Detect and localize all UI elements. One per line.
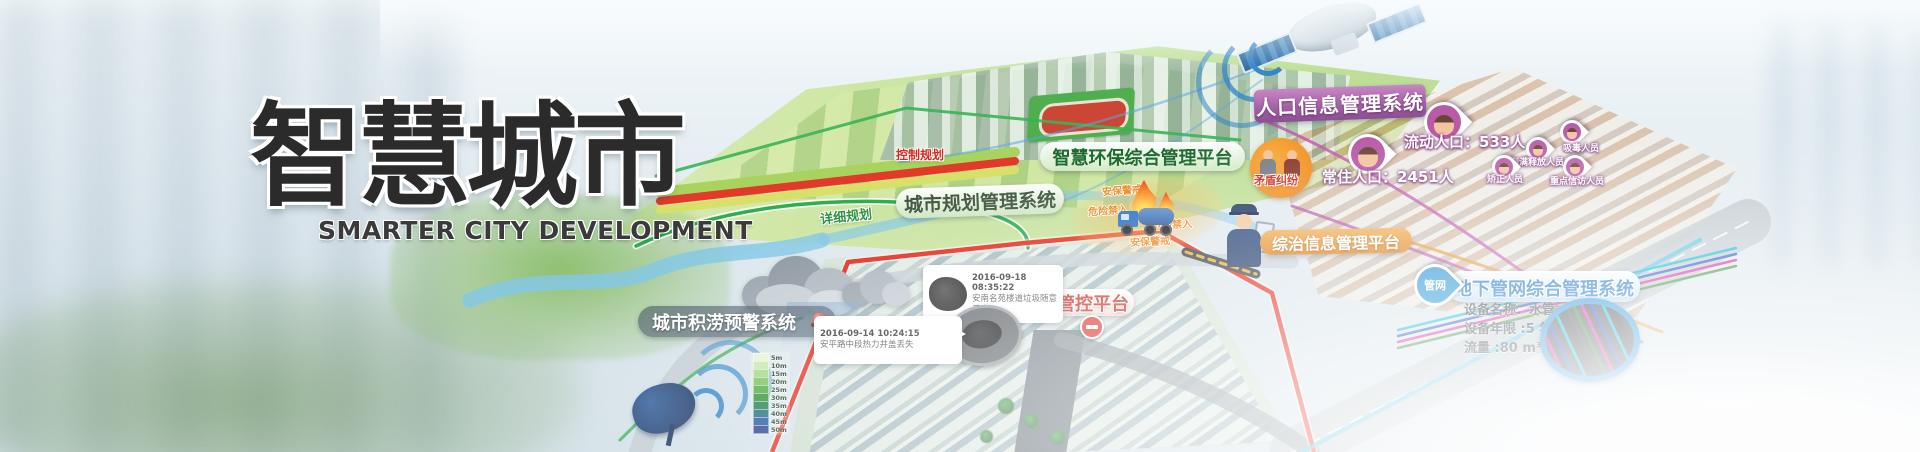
- legend-row: 30m: [753, 394, 787, 401]
- flood-warning-text: 城市积涝预警系统: [652, 309, 796, 335]
- pipe-pin-text: 管网: [1417, 277, 1453, 293]
- pipe-info-name: 设备名称：水管: [1464, 301, 1556, 320]
- label-governance-platform[interactable]: 综治信息管理平台: [1260, 228, 1412, 256]
- tree-icon: [1024, 414, 1038, 428]
- incident-time: 2016-09-14 10:24:15: [820, 329, 920, 340]
- accident-truck-icon: [1118, 207, 1176, 231]
- pin-label-resident-population: 常住人口：2451人: [1322, 166, 1454, 187]
- legend-label: 30m: [771, 394, 787, 402]
- legend-row: 20m: [753, 378, 787, 385]
- note-control-plan: 控制规划: [896, 146, 944, 163]
- pipe-magnifier-photo: [1540, 298, 1640, 382]
- legend-label: 25m: [771, 386, 787, 394]
- legend-row: 50m: [753, 426, 787, 433]
- legend-row: 10m: [753, 362, 787, 369]
- legend-label: 15m: [771, 370, 787, 378]
- pin-label-petition: 重点信访人员: [1550, 174, 1604, 187]
- tree-icon: [980, 430, 993, 443]
- legend-row: 15m: [753, 370, 787, 377]
- incident-callout-manhole[interactable]: 2016-09-14 10:24:15 安平路中段热力井盖丢失: [814, 316, 962, 364]
- garbage-photo: [929, 277, 967, 311]
- label-planning-system[interactable]: 城市规划管理系统: [896, 183, 1065, 219]
- label-environment-platform[interactable]: 智慧环保综合管理平台: [1040, 142, 1245, 171]
- tree-icon: [1050, 430, 1065, 445]
- legend-row: 45m: [753, 418, 787, 425]
- note-conflict-dispute: 矛盾纠纷: [1254, 172, 1298, 188]
- legend-label: 40m: [771, 410, 787, 418]
- conflict-dispute-icon: [1250, 138, 1312, 198]
- page-title: 智慧城市: [250, 66, 682, 228]
- smart-city-banner: 智慧城市 SMARTER CITY DEVELOPMENT 5m 10m 15m…: [0, 0, 1920, 452]
- label-flood-warning-system[interactable]: 城市积涝预警系统: [638, 306, 836, 337]
- incident-desc: 安平路中段热力井盖丢失: [820, 340, 920, 351]
- pin-label-floating-population: 流动人口：533人: [1404, 131, 1525, 152]
- legend-row: 35m: [753, 402, 787, 409]
- tree-icon: [998, 398, 1014, 414]
- legend-label: 20m: [771, 378, 787, 386]
- pin-label-drug: 吸毒人员: [1563, 141, 1599, 154]
- page-subtitle: SMARTER CITY DEVELOPMENT: [318, 216, 753, 245]
- flood-depth-legend: 5m 10m 15m 20m 25m 30m 35m 40m 45m 50m: [750, 352, 790, 435]
- top-fade: [380, 0, 1920, 70]
- label-pipe-network-system[interactable]: 地下管网综合管理系统: [1448, 271, 1640, 302]
- legend-label: 50m: [771, 426, 787, 434]
- incident-time: 2016-09-18 08:35:22: [972, 273, 1057, 294]
- legend-label: 5m: [771, 354, 782, 362]
- legend-label: 10m: [771, 362, 787, 370]
- legend-swatch: [753, 425, 769, 434]
- legend-label: 35m: [771, 402, 787, 410]
- legend-row: 40m: [753, 410, 787, 417]
- legend-row: 25m: [753, 386, 787, 393]
- legend-label: 45m: [771, 418, 787, 426]
- no-entry-sign-icon: [1080, 315, 1104, 339]
- pin-label-correction: 矫正人员: [1487, 172, 1523, 185]
- legend-row: 5m: [753, 354, 787, 361]
- label-population-system[interactable]: 人口信息管理系统: [1253, 84, 1426, 123]
